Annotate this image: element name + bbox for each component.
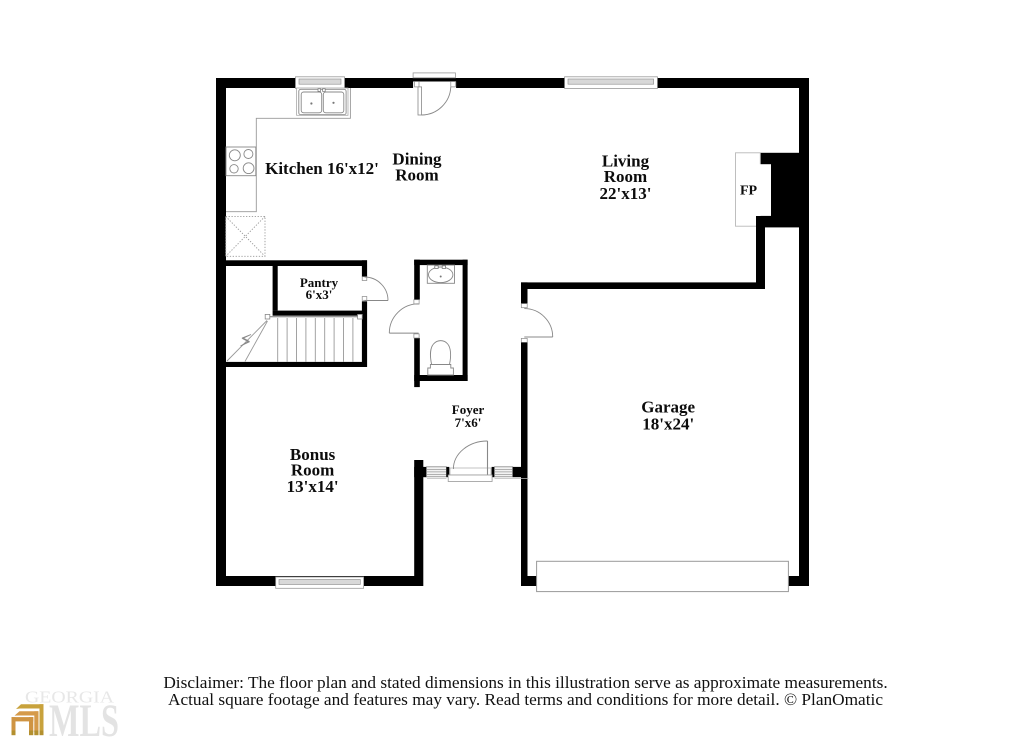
svg-text:22'x13': 22'x13' xyxy=(600,184,652,203)
svg-text:FP: FP xyxy=(740,183,758,198)
svg-text:Kitchen 16'x12': Kitchen 16'x12' xyxy=(265,159,379,178)
svg-text:MLS: MLS xyxy=(49,695,119,744)
svg-text:7'x6': 7'x6' xyxy=(455,415,482,430)
svg-text:13'x14': 13'x14' xyxy=(287,477,339,496)
svg-text:18'x24': 18'x24' xyxy=(642,414,694,433)
svg-text:Room: Room xyxy=(395,165,438,184)
svg-text:6'x3': 6'x3' xyxy=(306,287,333,302)
svg-text:Actual square footage and feat: Actual square footage and features may v… xyxy=(168,690,883,709)
